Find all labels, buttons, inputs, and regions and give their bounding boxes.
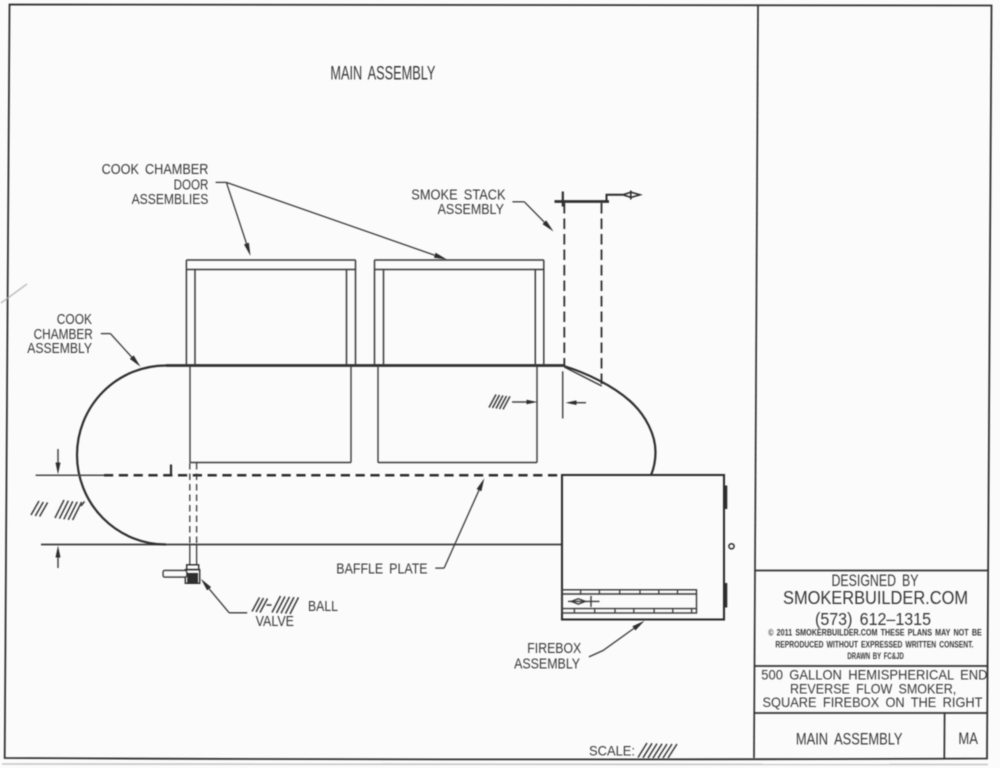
svg-text:FIREBOX: FIREBOX	[527, 641, 581, 657]
svg-text:MAIN ASSEMBLY: MAIN ASSEMBLY	[330, 62, 435, 84]
svg-text:BALL: BALL	[308, 599, 338, 615]
svg-text:SMOKERBUILDER.COM: SMOKERBUILDER.COM	[783, 587, 968, 608]
svg-text:COOK CHAMBER: COOK CHAMBER	[102, 162, 209, 178]
svg-text:DRAWN BY FC&JD: DRAWN BY FC&JD	[847, 651, 904, 661]
svg-text:REPRODUCED WITHOUT EXPRESSED W: REPRODUCED WITHOUT EXPRESSED WRITTEN CON…	[775, 640, 973, 650]
svg-text:ASSEMBLIES: ASSEMBLIES	[132, 192, 209, 208]
svg-text:VALVE: VALVE	[256, 614, 295, 630]
svg-text:(573) 612–1315: (573) 612–1315	[815, 609, 931, 629]
svg-text:BAFFLE PLATE: BAFFLE PLATE	[336, 562, 427, 578]
svg-text:© 2011 SMOKERBUILDER.COM THESE: © 2011 SMOKERBUILDER.COM THESE PLANS MAY…	[768, 628, 982, 638]
svg-text:SQUARE FIREBOX ON THE RIGHT: SQUARE FIREBOX ON THE RIGHT	[763, 694, 983, 710]
svg-text:ASSEMBLY: ASSEMBLY	[438, 202, 504, 218]
svg-text:ASSEMBLY: ASSEMBLY	[27, 341, 92, 357]
svg-text:MA: MA	[958, 729, 978, 748]
svg-text:SCALE:: SCALE:	[589, 743, 635, 759]
svg-text:ASSEMBLY: ASSEMBLY	[514, 656, 580, 672]
svg-text:COOK: COOK	[57, 312, 92, 328]
svg-text:MAIN ASSEMBLY: MAIN ASSEMBLY	[796, 730, 903, 748]
